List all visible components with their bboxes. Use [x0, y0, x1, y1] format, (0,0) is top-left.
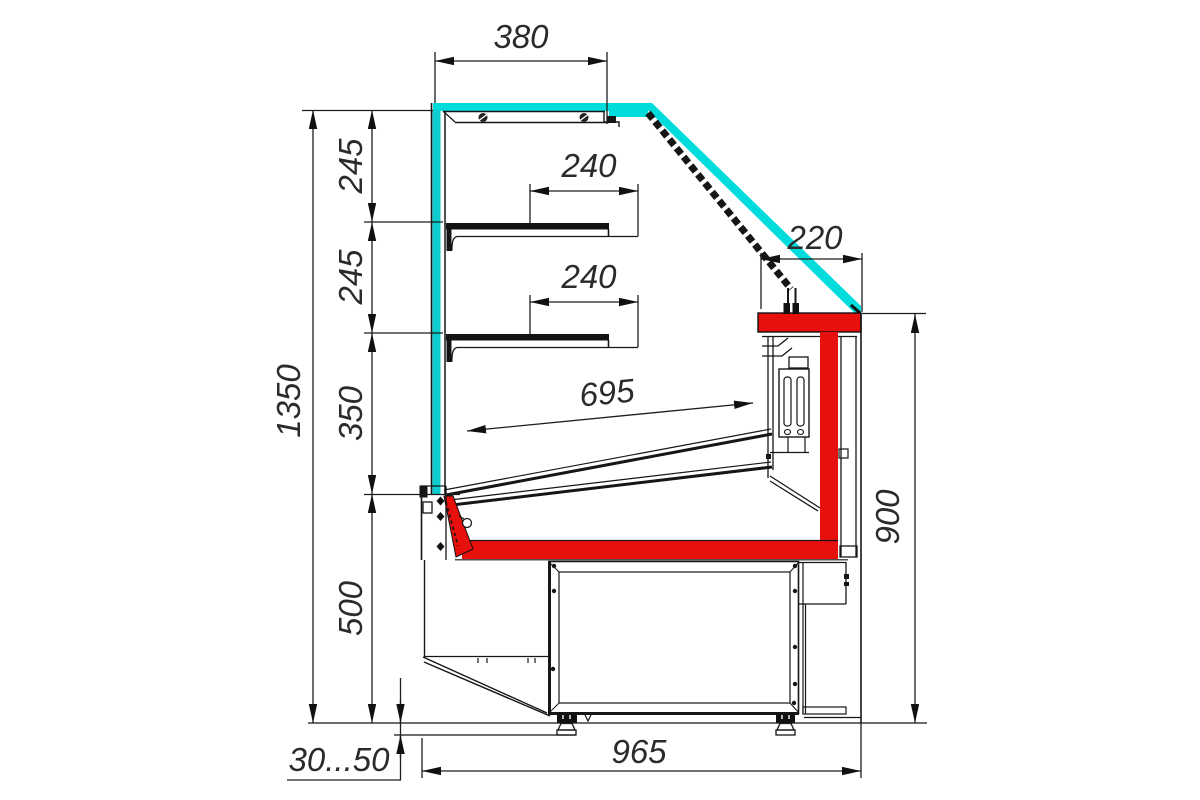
svg-text:1350: 1350	[270, 364, 307, 438]
svg-text:350: 350	[332, 385, 369, 441]
svg-text:500: 500	[332, 580, 369, 636]
svg-text:240: 240	[560, 147, 617, 184]
svg-text:695: 695	[578, 371, 637, 413]
svg-text:245: 245	[332, 138, 369, 195]
svg-text:245: 245	[332, 249, 369, 306]
svg-text:240: 240	[560, 258, 617, 295]
svg-text:380: 380	[493, 18, 549, 55]
svg-text:900: 900	[869, 489, 906, 545]
svg-text:965: 965	[611, 733, 667, 770]
svg-text:30...50: 30...50	[289, 741, 391, 778]
svg-text:220: 220	[786, 219, 843, 256]
